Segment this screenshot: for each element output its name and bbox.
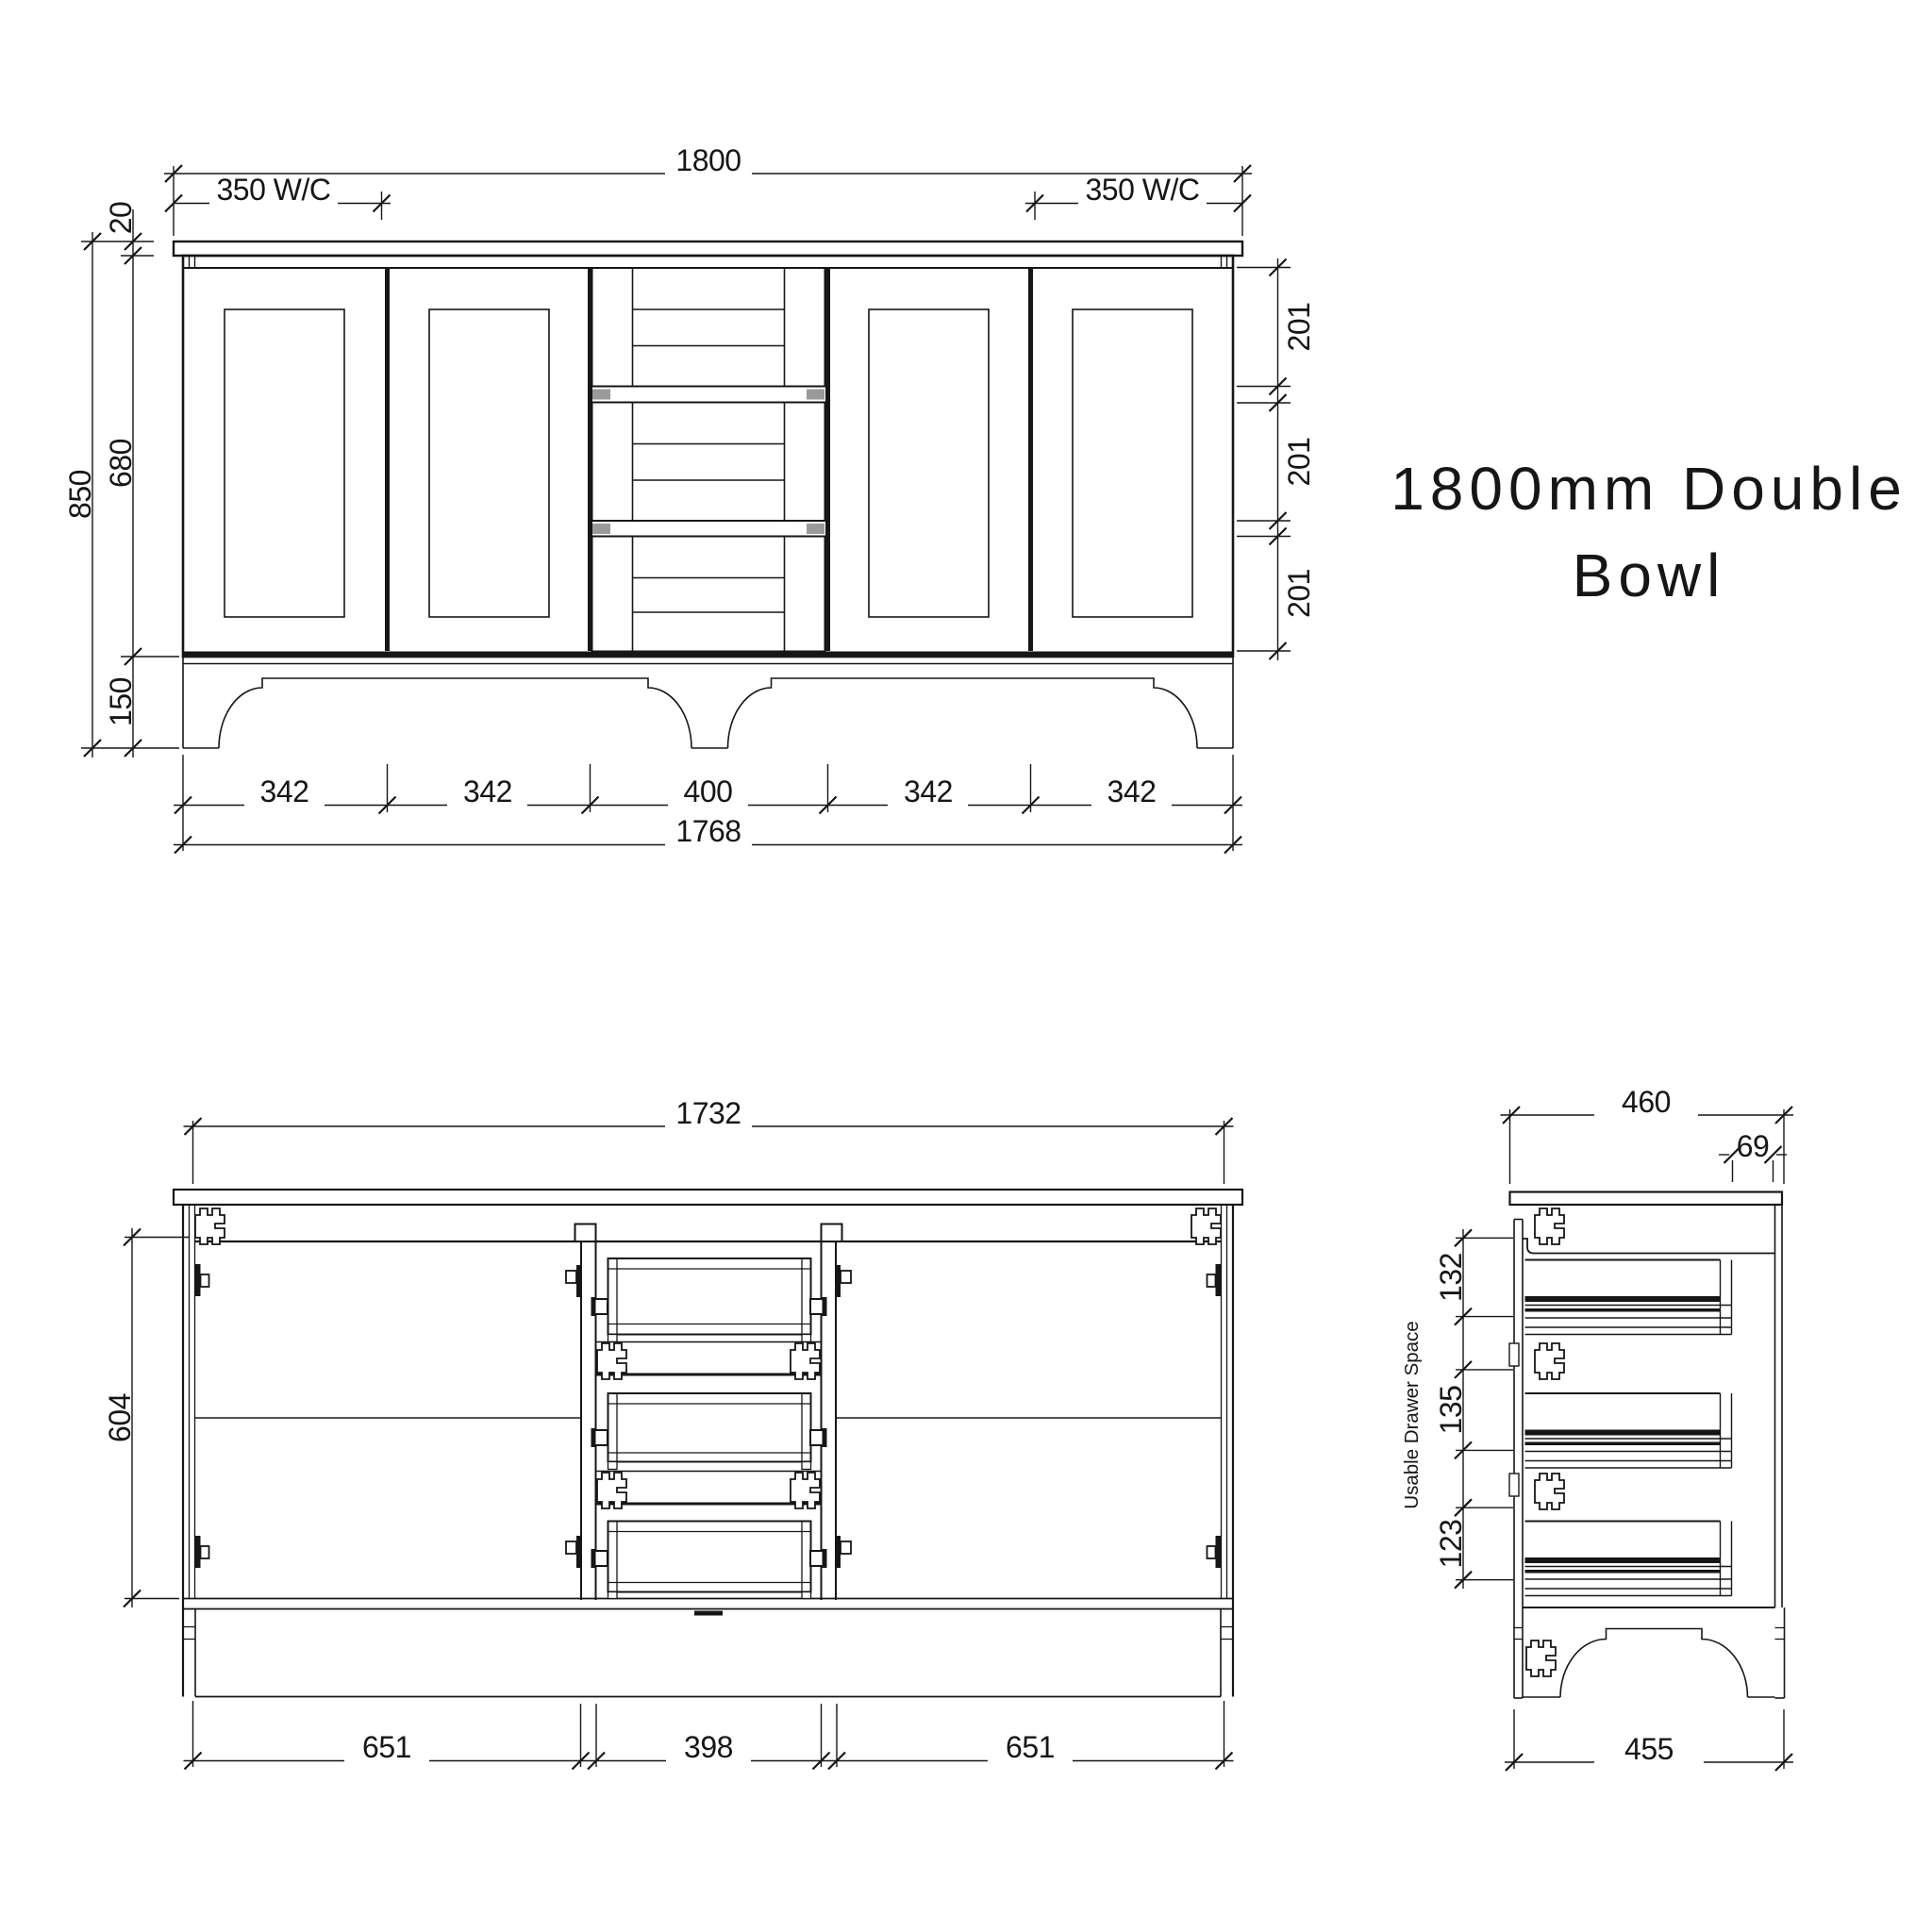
- svg-text:651: 651: [1006, 1730, 1055, 1764]
- svg-text:Usable Drawer Space: Usable Drawer Space: [1401, 1321, 1423, 1508]
- svg-text:455: 455: [1624, 1732, 1674, 1766]
- svg-text:342: 342: [463, 774, 512, 808]
- svg-text:460: 460: [1622, 1085, 1671, 1119]
- svg-text:680: 680: [104, 439, 138, 488]
- svg-text:20: 20: [104, 202, 138, 235]
- svg-text:201: 201: [1282, 303, 1316, 352]
- svg-text:201: 201: [1282, 438, 1316, 487]
- svg-text:342: 342: [904, 774, 953, 808]
- svg-text:398: 398: [684, 1730, 733, 1764]
- svg-text:400: 400: [684, 774, 733, 808]
- svg-text:651: 651: [362, 1730, 411, 1764]
- svg-text:342: 342: [1108, 774, 1157, 808]
- svg-text:350 W/C: 350 W/C: [217, 173, 331, 207]
- svg-text:69: 69: [1737, 1129, 1770, 1163]
- svg-text:123: 123: [1434, 1520, 1468, 1569]
- svg-text:201: 201: [1282, 569, 1316, 618]
- svg-text:342: 342: [260, 774, 309, 808]
- svg-text:604: 604: [103, 1393, 137, 1442]
- svg-text:350 W/C: 350 W/C: [1086, 173, 1200, 207]
- svg-text:132: 132: [1434, 1253, 1468, 1302]
- svg-text:150: 150: [104, 677, 138, 726]
- svg-text:1800: 1800: [675, 143, 741, 177]
- svg-text:1768: 1768: [675, 814, 741, 848]
- svg-text:1732: 1732: [675, 1096, 741, 1130]
- svg-text:850: 850: [63, 470, 97, 519]
- svg-text:1800mm Double: 1800mm Double: [1391, 455, 1907, 523]
- svg-text:135: 135: [1434, 1386, 1468, 1435]
- svg-text:Bowl: Bowl: [1573, 541, 1726, 609]
